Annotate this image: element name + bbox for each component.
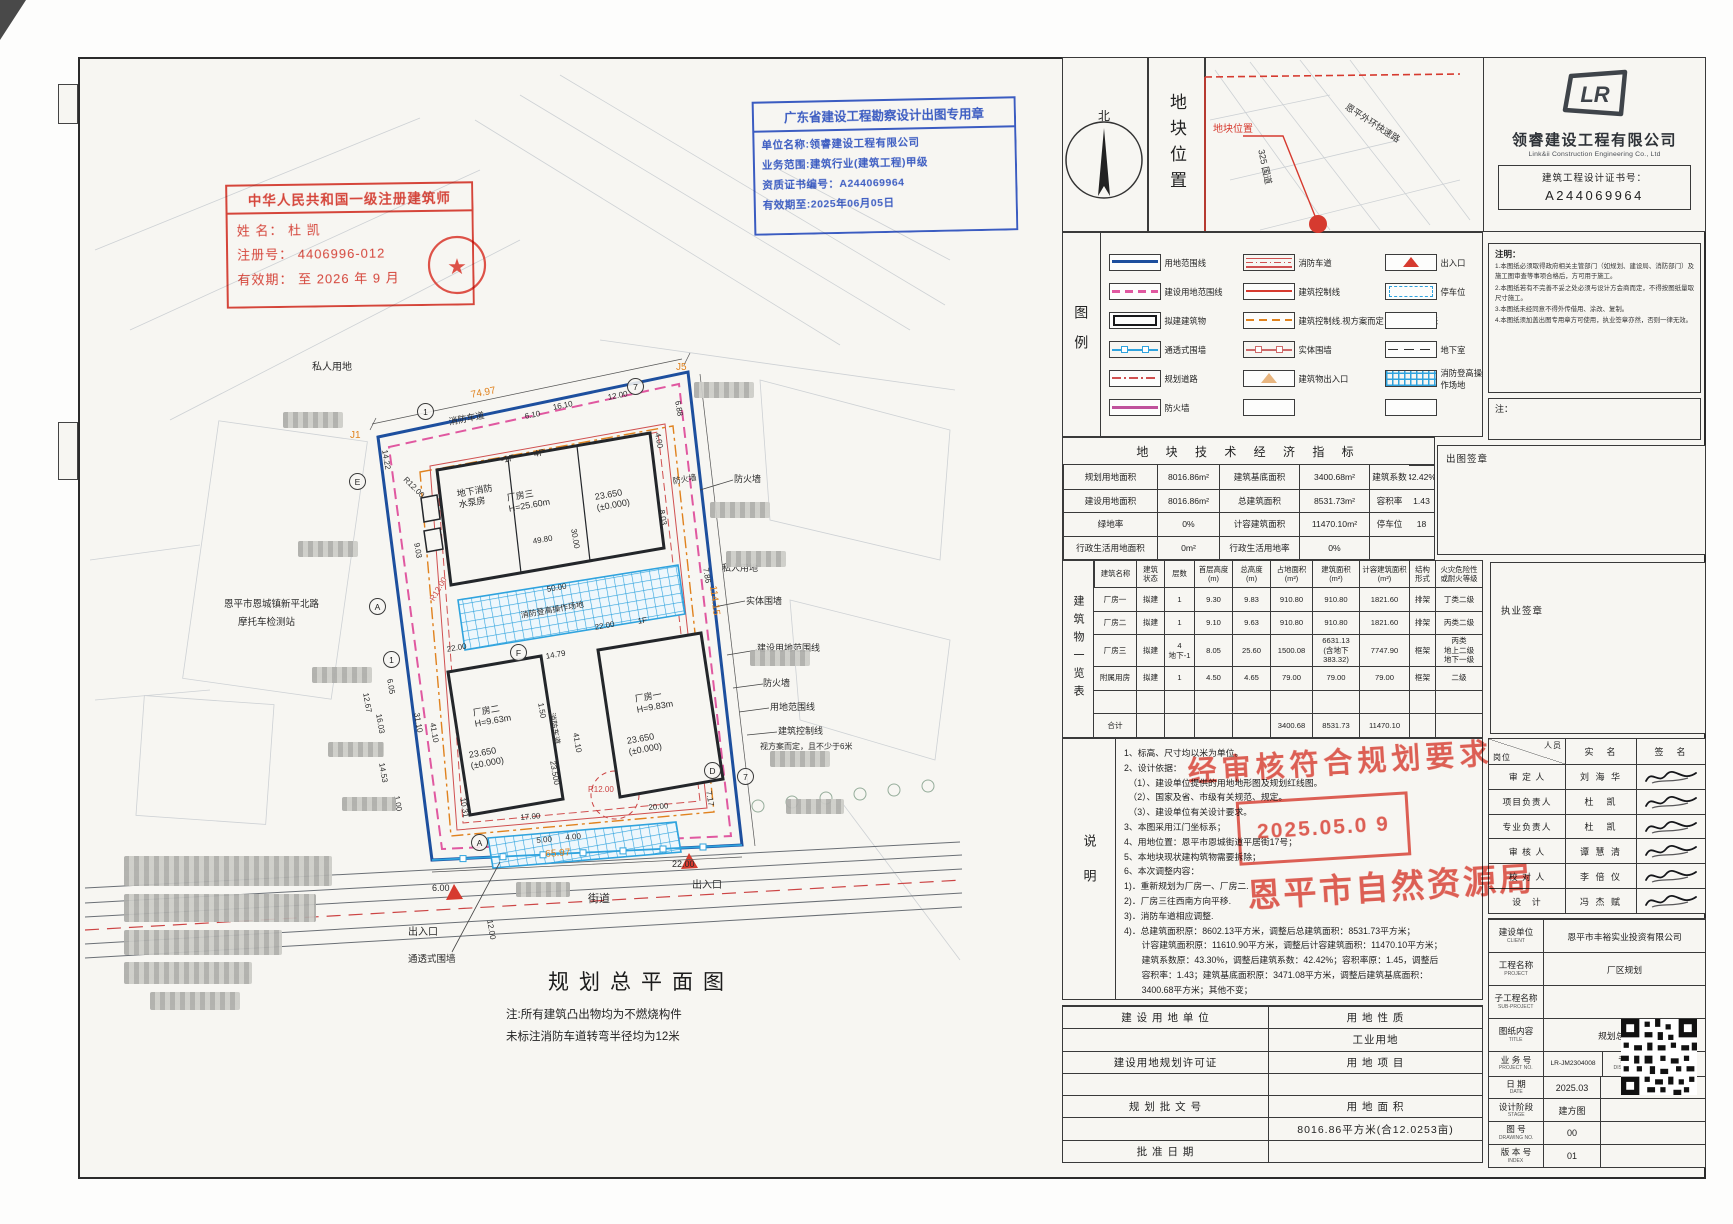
header-cell: 签 名 bbox=[1637, 739, 1705, 764]
cell bbox=[1063, 1118, 1269, 1139]
legend-label: 地下室 bbox=[1441, 344, 1466, 356]
cell: 规 划 批 文 号 bbox=[1063, 1096, 1269, 1117]
stamp-valid-row: 有效期： 至 2026 年 9 月 bbox=[228, 260, 472, 288]
design-institute-stamp: 广东省建设工程勘察设计出图专用章 单位名称:领睿建设工程有限公司 业务范围:建筑… bbox=[752, 96, 1019, 235]
legend-item: 出入口 bbox=[1385, 254, 1483, 271]
legend-item bbox=[1385, 312, 1483, 329]
building-row: 附属用房 拟建 1 4.50 4.65 79.00 79.00 79.00 框架… bbox=[1094, 666, 1482, 690]
header-cell: 建筑 状态 bbox=[1136, 561, 1164, 587]
cell: 910.80 bbox=[1270, 612, 1312, 635]
row-label: 图纸内容TITLE bbox=[1489, 1019, 1544, 1051]
plan-note-line: 未标注消防车道转弯半径均为12米 bbox=[506, 1026, 682, 1048]
general-notices-box: 注明： 1.本图纸必须取得政府相关主管部门（如规划、建设局、消防部门）及施工图审… bbox=[1488, 243, 1701, 393]
legend-item: 建筑控制线.视方案而定，且不少于6米 bbox=[1243, 312, 1385, 329]
legend-symbol-icon bbox=[1385, 254, 1437, 271]
stage-value: 建方图 bbox=[1544, 1099, 1601, 1121]
legend-symbol-icon bbox=[1109, 312, 1161, 329]
technical-indicators-table: 地 块 技 术 经 济 指 标 规划用地面积8016.86m²建筑基底面积340… bbox=[1062, 437, 1435, 560]
plan-label: 恩平市恩城镇新平北路 bbox=[224, 599, 319, 610]
land-use-row: 规 划 批 文 号 用 地 面 积 bbox=[1063, 1095, 1482, 1117]
legend-item: 拟建建筑物 bbox=[1109, 312, 1243, 329]
building-row: 厂房三 拟建 4 地下-1 8.05 25.60 1500.08 6631.13… bbox=[1094, 634, 1482, 665]
note-box: 注： bbox=[1488, 398, 1701, 440]
header-cell: 总高度 (m) bbox=[1232, 561, 1270, 587]
cell: 8016.86平方米(合12.0253亩) bbox=[1269, 1118, 1482, 1139]
building-table-side-label: 建筑物一览表 bbox=[1070, 595, 1086, 703]
location-map bbox=[1205, 57, 1483, 232]
grid-bubble: D bbox=[704, 762, 721, 779]
binding-mark bbox=[58, 84, 78, 124]
location-title: 地块位置 bbox=[1164, 93, 1189, 197]
plan-label: 17.00 bbox=[520, 811, 541, 822]
legend-item: 规划道路 bbox=[1109, 370, 1243, 387]
spacer bbox=[1601, 1122, 1705, 1144]
notices-list: 1.本图纸必须取得政府相关主管部门（如规划、建设局、消防部门）及施工图审查等事项… bbox=[1495, 262, 1694, 327]
land-use-row bbox=[1063, 1073, 1482, 1095]
row-label: 版 本 号INDEX bbox=[1489, 1145, 1544, 1167]
legend-label: 拟建建筑物 bbox=[1165, 315, 1207, 327]
indicator-cell: 建筑基底面积 bbox=[1219, 465, 1299, 489]
cell: 1 bbox=[1164, 588, 1194, 611]
redacted-patch bbox=[124, 894, 316, 922]
indicator-cell: 11470.10m² bbox=[1299, 512, 1369, 536]
indicator-cell: 规划用地面积 bbox=[1063, 465, 1157, 489]
indicator-cell: 0% bbox=[1157, 512, 1219, 536]
legend-item: 防火墙 bbox=[1109, 399, 1243, 416]
legend-symbol-icon bbox=[1385, 370, 1437, 387]
legend-symbol-icon bbox=[1243, 399, 1295, 416]
title-block-row: 工程名称PROJECT 厂区规划 bbox=[1489, 952, 1705, 985]
indicator-cell: 行政生活用地面积 bbox=[1063, 536, 1157, 560]
plan-label: 4F bbox=[533, 447, 545, 459]
legend-symbol-icon bbox=[1385, 399, 1437, 416]
scan-artifact bbox=[0, 0, 26, 40]
grid-bubble: 1 bbox=[383, 651, 400, 668]
grid-bubble: E bbox=[349, 473, 366, 490]
indicator-cell: 8531.73m² bbox=[1299, 489, 1369, 513]
legend-symbol-icon bbox=[1109, 283, 1161, 300]
header-cell: 层数 bbox=[1164, 561, 1194, 587]
header-cell: 结构 形式 bbox=[1409, 561, 1435, 587]
plan-label: 出入口 bbox=[692, 880, 722, 892]
plan-label: 建筑控制线 bbox=[778, 726, 823, 737]
legend-label: 出入口 bbox=[1441, 257, 1466, 269]
grid-bubble: 7 bbox=[737, 768, 754, 785]
row-value: 厂区规划 bbox=[1544, 953, 1705, 985]
header-cell: 计容建筑面积 (m²) bbox=[1359, 561, 1409, 587]
cell: 排架 bbox=[1409, 612, 1435, 635]
cell bbox=[1359, 691, 1409, 714]
cell: 框架 bbox=[1409, 667, 1435, 690]
land-use-row: 工业用地 bbox=[1063, 1028, 1482, 1050]
cell: 7747.90 bbox=[1359, 635, 1409, 665]
legend-item: 建筑控制线 bbox=[1243, 283, 1385, 300]
cell: 建设用地规划许可证 bbox=[1063, 1052, 1269, 1073]
indicator-cell: 计容建筑面积 bbox=[1219, 512, 1299, 536]
north-compass-box bbox=[1062, 57, 1148, 232]
svg-text:LR: LR bbox=[1580, 82, 1609, 107]
cell: 建 设 用 地 单 位 bbox=[1063, 1007, 1269, 1028]
land-use-row: 建设用地规划许可证 用 地 项 目 bbox=[1063, 1051, 1482, 1073]
legend-label: 停车位 bbox=[1441, 286, 1466, 298]
legend-item bbox=[1385, 399, 1483, 416]
notice-line: 3.本图纸未经同意不得外传借用、涂改、复制。 bbox=[1495, 305, 1694, 315]
plan-label: J5 bbox=[676, 362, 687, 374]
plan-label: 街道 bbox=[588, 893, 610, 906]
archive-qr-code bbox=[1617, 1017, 1701, 1097]
cell: 丙类二级 bbox=[1435, 612, 1482, 635]
signature-cell bbox=[1637, 790, 1705, 814]
cell: 批 准 日 期 bbox=[1063, 1141, 1269, 1162]
notice-line: 4.本图纸须加盖出图专用章方可使用，执业签章亦然，否则一律无效。 bbox=[1495, 316, 1694, 326]
cert-number: A244069964 bbox=[1499, 188, 1690, 203]
legend-item: 通透式围墙 bbox=[1109, 341, 1243, 358]
legend-symbol-icon bbox=[1243, 370, 1295, 387]
signature-scribble bbox=[1642, 891, 1700, 911]
legend-symbol-icon bbox=[1243, 312, 1295, 329]
row-label: 日 期DATE bbox=[1489, 1077, 1544, 1099]
redacted-patch bbox=[786, 799, 844, 814]
practice-seal-box: 执业签章 bbox=[1490, 562, 1706, 734]
signature-cell bbox=[1637, 889, 1705, 913]
signature-cell bbox=[1637, 839, 1705, 863]
cell bbox=[1269, 1141, 1482, 1162]
building-table-main: 建筑名称建筑 状态层数首层高度 (m)总高度 (m)占地面积 (m²)建筑面积 … bbox=[1094, 561, 1482, 737]
index-value: 01 bbox=[1544, 1145, 1601, 1167]
cell bbox=[1232, 691, 1270, 714]
indicator-cell: 8016.86m² bbox=[1157, 489, 1219, 513]
grid-bubble: A bbox=[471, 834, 488, 851]
indicator-cell bbox=[1409, 536, 1434, 560]
description-side-label: 说明 bbox=[1080, 834, 1099, 904]
plan-label: 22.00 bbox=[672, 859, 695, 870]
legend-label: 建设用地范围线 bbox=[1165, 286, 1223, 298]
cell: 用 地 性 质 bbox=[1269, 1007, 1482, 1028]
cell: 4.50 bbox=[1194, 667, 1232, 690]
cell bbox=[1269, 1074, 1482, 1095]
cell: 79.00 bbox=[1270, 667, 1312, 690]
legend-symbol-icon bbox=[1385, 312, 1437, 329]
cell: 910.80 bbox=[1312, 612, 1359, 635]
indicator-cell: 建筑系数 bbox=[1369, 465, 1409, 489]
legend-item: 用地范围线 bbox=[1109, 254, 1243, 271]
indicator-cell: 42.42% bbox=[1409, 465, 1434, 489]
cell: 框架 bbox=[1409, 635, 1435, 665]
plan-label: 通透式围墙 bbox=[408, 954, 456, 965]
redacted-patch bbox=[726, 551, 786, 567]
redacted-patch bbox=[770, 751, 830, 767]
company-name: 领睿建设工程有限公司 bbox=[1484, 129, 1705, 150]
redacted-patch bbox=[750, 650, 810, 666]
cell: 厂房三 bbox=[1094, 635, 1136, 665]
indicator-cell: 建设用地面积 bbox=[1063, 489, 1157, 513]
legend-label: 防火墙 bbox=[1165, 402, 1190, 414]
cert-box: 建筑工程设计证书号： A244069964 bbox=[1498, 165, 1691, 210]
redacted-patch bbox=[328, 742, 384, 757]
plan-label: 65.97 bbox=[545, 847, 571, 861]
indicator-cell: 1.43 bbox=[1409, 489, 1434, 513]
cell: 1821.60 bbox=[1359, 588, 1409, 611]
indicator-cell: 0m² bbox=[1157, 536, 1219, 560]
company-block: LR 领睿建设工程有限公司 Link&ii Construction Engin… bbox=[1483, 57, 1706, 232]
cell bbox=[1063, 1074, 1269, 1095]
stage-row: 设计阶段STAGE 建方图 bbox=[1489, 1098, 1705, 1121]
binding-mark bbox=[58, 422, 78, 480]
legend-label: 用地范围线 bbox=[1165, 257, 1207, 269]
land-use-table: 建 设 用 地 单 位 用 地 性 质 工业用地 建设用地规划许可证 用 地 项… bbox=[1062, 1005, 1483, 1163]
legend-grid: 用地范围线 消防车道 出入口 建设用地范围线 建筑控制线 bbox=[1101, 233, 1483, 436]
row-value bbox=[1544, 986, 1705, 1018]
header-cell: 首层高度 (m) bbox=[1194, 561, 1232, 587]
plan-label: 实体围墙 bbox=[746, 596, 782, 607]
cell: 1 bbox=[1164, 612, 1194, 635]
cell: 9.63 bbox=[1232, 612, 1270, 635]
legend-label: 消防车道 bbox=[1299, 257, 1332, 269]
building-row: 厂房二 拟建 1 9.10 9.63 910.80 910.80 1821.60… bbox=[1094, 611, 1482, 635]
signature-cell bbox=[1637, 765, 1705, 789]
building-list-table: 建筑物一览表 建筑名称建筑 状态层数首层高度 (m)总高度 (m)占地面积 (m… bbox=[1062, 560, 1483, 738]
stamp-title: 中华人民共和国一级注册建筑师 bbox=[227, 183, 471, 214]
cell bbox=[1063, 1029, 1269, 1050]
legend-symbol-icon bbox=[1243, 283, 1295, 300]
cell bbox=[1270, 691, 1312, 714]
building-table-rows: 厂房一 拟建 1 9.30 9.83 910.80 910.80 1821.60… bbox=[1094, 587, 1482, 737]
spacer bbox=[1601, 1099, 1705, 1121]
signature-scribble bbox=[1642, 767, 1700, 787]
indicator-cell: 0% bbox=[1299, 536, 1369, 560]
legend-item: 建筑物出入口 bbox=[1243, 370, 1385, 387]
cell: 79.00 bbox=[1359, 667, 1409, 690]
cell: 9.30 bbox=[1194, 588, 1232, 611]
legend-label: 消防登高操 作场地 bbox=[1441, 367, 1483, 391]
plan-label: 防火墙 bbox=[734, 474, 761, 485]
plan-label: 出入口 bbox=[408, 927, 438, 939]
notices-title: 注明： bbox=[1495, 248, 1694, 260]
issue-seal-box: 出图签章 bbox=[1437, 445, 1706, 555]
approval-date: 2025.05.0 9 bbox=[1236, 791, 1412, 865]
cell bbox=[1164, 691, 1194, 714]
indicator-cell: 绿地率 bbox=[1063, 512, 1157, 536]
cert-label: 建筑工程设计证书号： bbox=[1499, 170, 1690, 184]
indicator-cell: 3400.68m² bbox=[1299, 465, 1369, 489]
grid-bubble: F bbox=[510, 644, 527, 661]
legend-item: 地下室 bbox=[1385, 341, 1483, 358]
cell: 1821.60 bbox=[1359, 612, 1409, 635]
legend-label: 通透式围墙 bbox=[1165, 344, 1207, 356]
legend-label: 规划道路 bbox=[1165, 373, 1198, 385]
land-use-row: 8016.86平方米(合12.0253亩) bbox=[1063, 1117, 1482, 1139]
redacted-patch bbox=[150, 992, 240, 1010]
signature-scribble bbox=[1642, 817, 1700, 837]
cell: 4.65 bbox=[1232, 667, 1270, 690]
cell: 工业用地 bbox=[1269, 1029, 1482, 1050]
legend-symbol-icon bbox=[1109, 370, 1161, 387]
legend-symbol-icon bbox=[1109, 254, 1161, 271]
cell: 附属用房 bbox=[1094, 667, 1136, 690]
cell bbox=[1136, 691, 1164, 714]
plan-label: 摩托车检测站 bbox=[238, 617, 295, 628]
building-table-header: 建筑名称建筑 状态层数首层高度 (m)总高度 (m)占地面积 (m²)建筑面积 … bbox=[1094, 561, 1482, 587]
issue-seal-label: 出图签章 bbox=[1446, 454, 1488, 465]
indicator-cell: 行政生活用地率 bbox=[1219, 536, 1299, 560]
redacted-patch bbox=[516, 882, 570, 897]
legend-label: 建筑物出入口 bbox=[1299, 373, 1349, 385]
legend-symbol-icon bbox=[1385, 283, 1437, 300]
redacted-patch bbox=[312, 667, 372, 683]
indicator-cell: 总建筑面积 bbox=[1219, 489, 1299, 513]
planning-approval-stamp: 经审核符合规划要求 2025.05.0 9 恩平市自然资源局 bbox=[1143, 707, 1586, 963]
cell: 1500.08 bbox=[1270, 635, 1312, 665]
cell: 厂房一 bbox=[1094, 588, 1136, 611]
plan-notes: 注:所有建筑凸出物均为不燃烧构件未标注消防车道转弯半径均为12米 bbox=[506, 1004, 682, 1048]
row-label: 设计阶段STAGE bbox=[1489, 1099, 1544, 1121]
building-row bbox=[1094, 690, 1482, 714]
header-cell: 建筑名称 bbox=[1094, 561, 1136, 587]
cell: 4 地下-1 bbox=[1164, 635, 1194, 665]
row-label: 业 务 号PROJECT NO. bbox=[1489, 1052, 1544, 1076]
cell: 拟建 bbox=[1136, 612, 1164, 635]
stamp-reg-row: 注册号： 4406996-012 bbox=[228, 236, 472, 264]
legend-symbol-icon bbox=[1385, 341, 1437, 358]
description-line: 3400.68平方米；其他不变； bbox=[1124, 983, 1478, 998]
plan-title: 规划总平面图 bbox=[548, 966, 734, 996]
plan-label: R12.00 bbox=[588, 785, 614, 795]
redacted-patch bbox=[298, 541, 358, 557]
plan-label: 用地范围线 bbox=[770, 702, 815, 713]
cell: 合计 bbox=[1094, 714, 1136, 737]
land-use-row: 批 准 日 期 bbox=[1063, 1140, 1482, 1162]
company-name-en: Link&ii Construction Engineering Co., Lt… bbox=[1484, 151, 1705, 158]
cell: 1 bbox=[1164, 667, 1194, 690]
company-logo-icon: LR bbox=[1553, 64, 1637, 122]
grid-bubble: 1 bbox=[417, 403, 434, 420]
practice-seal-label: 执业签章 bbox=[1501, 606, 1543, 617]
legend-symbol-icon bbox=[1243, 254, 1295, 271]
legend-symbol-icon bbox=[1109, 399, 1161, 416]
legend-title-cell: 图例 bbox=[1063, 233, 1101, 436]
legend: 图例 用地范围线 消防车道 出入口 建设用地范围线 bbox=[1062, 232, 1483, 437]
legend-item bbox=[1243, 399, 1385, 416]
plan-label: 20.00 bbox=[648, 801, 669, 812]
date-value: 2025.03 bbox=[1544, 1077, 1601, 1099]
redacted-patch bbox=[124, 856, 332, 886]
cell bbox=[1312, 691, 1359, 714]
legend-item: 实体围墙 bbox=[1243, 341, 1385, 358]
cell: 9.10 bbox=[1194, 612, 1232, 635]
header-cell: 实 名 bbox=[1566, 739, 1637, 764]
spacer bbox=[1601, 1145, 1705, 1167]
redacted-patch bbox=[124, 962, 252, 984]
plan-label: 5.00 bbox=[536, 835, 552, 846]
building-table-side-label-cell: 建筑物一览表 bbox=[1063, 561, 1094, 737]
row-label: 工程名称PROJECT bbox=[1489, 953, 1544, 985]
land-use-row: 建 设 用 地 单 位 用 地 性 质 bbox=[1063, 1006, 1482, 1028]
cell: 8.05 bbox=[1194, 635, 1232, 665]
legend-item: 停车位 bbox=[1385, 283, 1483, 300]
indicator-cell: 8016.86m² bbox=[1157, 465, 1219, 489]
legend-symbol-icon bbox=[1243, 341, 1295, 358]
cell: 910.80 bbox=[1312, 588, 1359, 611]
cell: 9.83 bbox=[1232, 588, 1270, 611]
qr-code-icon bbox=[1621, 1019, 1697, 1095]
signature-scribble bbox=[1642, 841, 1700, 861]
cell: 丁类二级 bbox=[1435, 588, 1482, 611]
cell: 拟建 bbox=[1136, 635, 1164, 665]
header-cell: 建筑面积 (m²) bbox=[1312, 561, 1359, 587]
note-label: 注： bbox=[1495, 404, 1513, 414]
legend-item: 消防车道 bbox=[1243, 254, 1385, 271]
cell bbox=[1409, 691, 1435, 714]
cell: 910.80 bbox=[1270, 588, 1312, 611]
title-block: 建设单位CLIENT 恩平市丰裕实业投资有限公司 工程名称PROJECT 厂区规… bbox=[1488, 918, 1706, 1168]
cell: 排架 bbox=[1409, 588, 1435, 611]
indicator-cell: 停车位 bbox=[1369, 512, 1409, 536]
plan-label: 6.00 bbox=[432, 883, 450, 894]
plan-label: 防火墙 bbox=[763, 678, 790, 689]
stamp-name-row: 姓 名： 杜 凯 bbox=[228, 211, 472, 239]
indicators-title: 地 块 技 术 经 济 指 标 bbox=[1063, 438, 1434, 465]
redacted-patch bbox=[694, 382, 754, 398]
redacted-patch bbox=[124, 930, 282, 955]
grid-bubble: A bbox=[369, 598, 386, 615]
location-title-box: 地块位置 bbox=[1148, 57, 1205, 232]
plan-label: -1F bbox=[500, 453, 515, 466]
plan-label: J1 bbox=[350, 430, 361, 442]
indicator-cell: 18 bbox=[1409, 512, 1434, 536]
cell: 25.60 bbox=[1232, 635, 1270, 665]
approval-text: 经审核符合规划要求 bbox=[1186, 730, 1494, 791]
signature-cell bbox=[1637, 815, 1705, 839]
redacted-patch bbox=[342, 797, 396, 811]
map-plot-label: 地块位置 bbox=[1213, 120, 1253, 135]
legend-label: 建筑控制线 bbox=[1299, 286, 1341, 298]
signature-scribble bbox=[1642, 866, 1700, 886]
plan-label: 1F bbox=[637, 615, 648, 626]
cell: 拟建 bbox=[1136, 667, 1164, 690]
registered-architect-stamp: 中华人民共和国一级注册建筑师 姓 名： 杜 凯 注册号： 4406996-012… bbox=[225, 181, 475, 308]
description-side-label-cell: 说明 bbox=[1063, 739, 1116, 999]
cell: 拟建 bbox=[1136, 588, 1164, 611]
redacted-patch bbox=[710, 502, 770, 518]
biz-no: LR-JM2304008 bbox=[1544, 1052, 1603, 1076]
index-row: 版 本 号INDEX 01 bbox=[1489, 1144, 1705, 1167]
notice-line: 2.本图纸若有不完善不妥之处必须与设计方会商而定，不得按图纸量取尺寸施工。 bbox=[1495, 284, 1694, 305]
plan-label: 私人用地 bbox=[312, 362, 352, 374]
drawing-no-value: 00 bbox=[1544, 1122, 1601, 1144]
signature-scribble bbox=[1642, 792, 1700, 812]
indicators-grid: 规划用地面积8016.86m²建筑基底面积3400.68m²建筑系数42.42%… bbox=[1063, 465, 1434, 559]
cell bbox=[1435, 691, 1482, 714]
cell bbox=[1094, 691, 1136, 714]
plan-label: 4.00 bbox=[565, 832, 581, 843]
description-line: 容积率：1.43；建筑基底面积原：3471.08平方米，调整后建筑基底面积： bbox=[1124, 968, 1478, 983]
row-label: 子工程名称SUB-PROJECT bbox=[1489, 986, 1544, 1018]
legend-title: 图例 bbox=[1071, 305, 1091, 365]
signature-cell bbox=[1637, 864, 1705, 888]
cell: 丙类 地上二级 地下一级 bbox=[1435, 635, 1482, 665]
cell: 二级 bbox=[1435, 667, 1482, 690]
cell: 厂房二 bbox=[1094, 612, 1136, 635]
cell: 6631.13 (含地下 383.32) bbox=[1312, 635, 1359, 665]
header-cell: 占地面积 (m²) bbox=[1270, 561, 1312, 587]
cell: 79.00 bbox=[1312, 667, 1359, 690]
cell: 用 地 面 积 bbox=[1269, 1096, 1482, 1117]
row-label: 图 号DRAWING NO. bbox=[1489, 1122, 1544, 1144]
building-row: 厂房一 拟建 1 9.30 9.83 910.80 910.80 1821.60… bbox=[1094, 587, 1482, 611]
plan-note-line: 注:所有建筑凸出物均为不燃烧构件 bbox=[506, 1004, 682, 1026]
legend-symbol-icon bbox=[1109, 341, 1161, 358]
header-cell: 火灾危险性 或耐火等级 bbox=[1435, 561, 1482, 587]
